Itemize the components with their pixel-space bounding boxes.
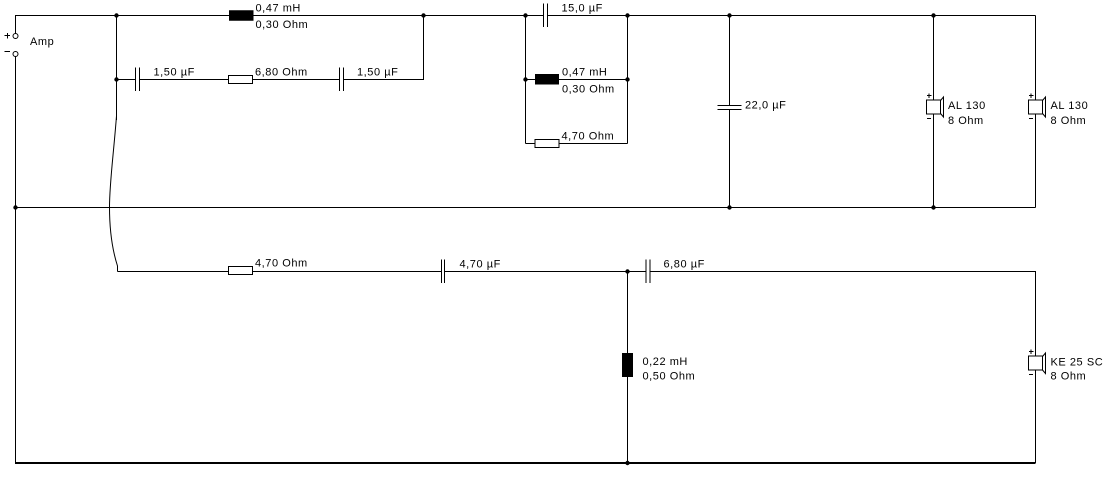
svg-text:0,47 mH: 0,47 mH [256, 3, 301, 15]
svg-text:0,47 mH: 0,47 mH [562, 67, 607, 79]
svg-text:0,50 Ohm: 0,50 Ohm [643, 371, 696, 383]
svg-text:AL 130: AL 130 [948, 100, 986, 112]
svg-text:1,50 µF: 1,50 µF [154, 67, 195, 79]
svg-text:KE 25 SC: KE 25 SC [1051, 356, 1104, 368]
svg-text:AL 130: AL 130 [1051, 100, 1089, 112]
svg-text:22,0 µF: 22,0 µF [745, 100, 786, 112]
svg-text:4,70 Ohm: 4,70 Ohm [255, 258, 308, 270]
svg-text:8 Ohm: 8 Ohm [1051, 115, 1087, 127]
svg-text:1,50 µF: 1,50 µF [357, 67, 398, 79]
svg-text:8 Ohm: 8 Ohm [1051, 371, 1087, 383]
svg-text:4,70 µF: 4,70 µF [460, 258, 501, 270]
svg-text:Amp: Amp [30, 36, 54, 48]
svg-text:15,0 µF: 15,0 µF [562, 3, 603, 15]
svg-text:6,80 Ohm: 6,80 Ohm [255, 67, 308, 79]
svg-text:8 Ohm: 8 Ohm [948, 115, 984, 127]
svg-text:0,22 mH: 0,22 mH [643, 356, 688, 368]
svg-text:0,30 Ohm: 0,30 Ohm [562, 84, 615, 96]
svg-text:4,70 Ohm: 4,70 Ohm [562, 131, 615, 143]
svg-text:6,80 µF: 6,80 µF [664, 258, 705, 270]
svg-text:0,30 Ohm: 0,30 Ohm [256, 19, 309, 31]
